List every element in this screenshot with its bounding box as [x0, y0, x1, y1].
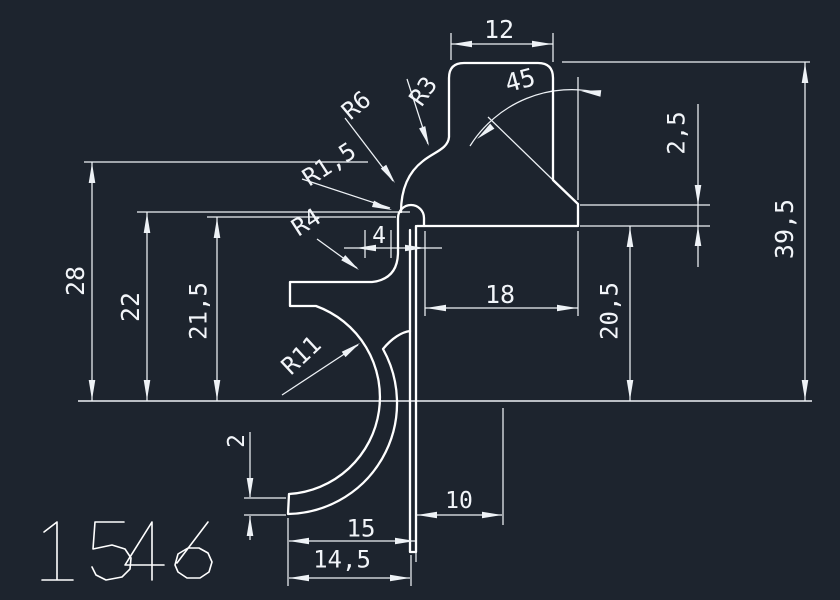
extension-line: [488, 117, 553, 180]
dimension-label: 2,5: [662, 111, 690, 154]
dimension-arrow: [581, 88, 602, 97]
dimension-arrow: [802, 63, 809, 83]
dimension-arrow: [802, 380, 809, 400]
dimension-arrow: [289, 575, 309, 582]
dimension-label: R1,5: [297, 137, 361, 192]
dimension-arrow: [419, 126, 432, 147]
dimension-label: 28: [61, 266, 90, 296]
dimension-arrow: [381, 165, 398, 185]
dimension-label: R6: [336, 85, 376, 125]
dimension-arrow: [214, 380, 221, 400]
dimension-arrow: [341, 255, 361, 273]
dimension-arrow: [695, 226, 702, 246]
dimension-arrow: [395, 538, 415, 545]
dimension-arrow: [89, 380, 96, 400]
dimension-arrow: [214, 218, 221, 238]
dimension-arrow: [144, 213, 151, 233]
part-number-text: [92, 522, 131, 580]
dimension-label: 18: [485, 280, 515, 309]
dimension-arrow: [482, 512, 502, 519]
dimension-arrow: [532, 41, 552, 48]
dimension-arrow: [452, 41, 472, 48]
dimension-arrow: [627, 380, 634, 400]
dimension-label: 22: [116, 292, 145, 322]
profile-outline: [410, 226, 416, 552]
dimension-arrow: [144, 380, 151, 400]
dimension-label: 45: [502, 62, 539, 98]
dimension-label: 4: [372, 223, 386, 249]
dimension-arrow: [89, 163, 96, 183]
part-number-text: [125, 522, 164, 580]
dimension-label: R4: [286, 203, 325, 242]
dimension-label: 14,5: [313, 545, 371, 573]
dimension-label: 20,5: [595, 282, 623, 340]
dimension-label: 39,5: [770, 199, 799, 259]
dimension-label: 15: [347, 514, 376, 542]
dimension-label: 21,5: [184, 282, 212, 340]
dimension-arrow: [557, 305, 577, 312]
dimension-arrow: [247, 478, 254, 498]
dimension-arrow: [627, 227, 634, 247]
dimension-arrow: [417, 512, 437, 519]
dimension-arrow: [390, 575, 410, 582]
dimension-label: 2: [224, 434, 250, 448]
dimension-arrow: [289, 538, 309, 545]
dimension-label: 12: [484, 15, 514, 44]
dimension-arrow: [247, 516, 254, 536]
cad-viewport: 1245R3R6R1,5R442,539,5282221,520,5181015…: [0, 0, 840, 600]
dimension-label: R3: [404, 71, 444, 111]
dimension-arrow: [695, 185, 702, 205]
part-number-text: [42, 522, 73, 580]
cad-drawing-canvas: 1245R3R6R1,5R442,539,5282221,520,5181015…: [0, 0, 840, 600]
dimension-arrow: [342, 340, 362, 357]
dimension-arrow: [426, 305, 446, 312]
dimension-arrow: [372, 201, 393, 213]
part-number-text: [175, 522, 212, 578]
dimension-label: R11: [276, 330, 327, 380]
dimension-label: 10: [445, 488, 473, 514]
